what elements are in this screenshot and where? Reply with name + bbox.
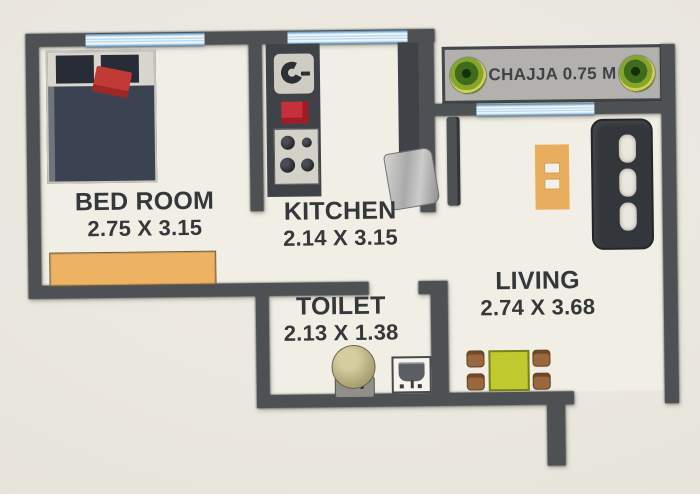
kitchen-label: KITCHEN 2.14 X 3.15 bbox=[262, 197, 418, 251]
kitchen-dimensions: 2.14 X 3.15 bbox=[263, 225, 418, 251]
dining-chair-icon bbox=[532, 350, 550, 367]
pillow-icon bbox=[56, 55, 94, 83]
bedroom-label: BED ROOM 2.75 X 3.15 bbox=[44, 187, 245, 241]
burner-icon bbox=[280, 158, 295, 173]
wall-left bbox=[25, 34, 41, 299]
bedroom-name: BED ROOM bbox=[44, 187, 244, 217]
living-dimensions: 2.74 X 3.68 bbox=[459, 294, 617, 320]
double-bed-icon bbox=[46, 49, 158, 183]
tv-unit-shelf bbox=[544, 178, 560, 189]
toilet-dimensions: 2.13 X 1.38 bbox=[271, 320, 411, 346]
wardrobe-icon bbox=[50, 252, 215, 286]
gas-stove-icon bbox=[281, 101, 308, 123]
sofa-cushion-icon bbox=[620, 202, 637, 230]
living-label: LIVING 2.74 X 3.68 bbox=[458, 267, 617, 321]
bedroom-window bbox=[85, 33, 204, 47]
living-name: LIVING bbox=[458, 267, 616, 296]
bedroom-dimensions: 2.75 X 3.15 bbox=[45, 215, 245, 242]
toilet-label: TOILET 2.13 X 1.38 bbox=[271, 292, 412, 345]
wall-toilet-left bbox=[256, 296, 270, 395]
kitchen-sink-icon bbox=[274, 53, 314, 93]
washbasin-foot bbox=[418, 384, 422, 388]
burner-icon bbox=[302, 137, 312, 147]
dining-table-icon bbox=[488, 350, 529, 391]
wall-bottom bbox=[257, 391, 574, 408]
tv-unit-icon bbox=[535, 144, 570, 209]
cooktop-burners-icon bbox=[274, 128, 320, 185]
sofa-cushion-icon bbox=[619, 168, 636, 196]
floor-plan-sheet: CHAJJA 0.75 M bbox=[0, 0, 700, 494]
wall-living-window-left bbox=[434, 103, 476, 116]
kitchen-counter-right bbox=[398, 42, 420, 154]
kitchen-name: KITCHEN bbox=[262, 197, 417, 226]
sofa-cushion-icon bbox=[619, 135, 636, 163]
wall-bedroom-kitchen bbox=[249, 44, 264, 211]
wall-entry-stub bbox=[547, 404, 566, 465]
dining-chair-icon bbox=[467, 373, 485, 390]
dining-chair-icon bbox=[466, 350, 484, 367]
living-window bbox=[476, 103, 594, 116]
wall-living-window-right bbox=[594, 101, 661, 114]
burner-icon bbox=[301, 158, 314, 171]
wall-toilet-living bbox=[431, 281, 450, 406]
tv-unit-shelf bbox=[544, 162, 560, 173]
toilet-name: TOILET bbox=[271, 292, 411, 321]
washbasin-icon bbox=[391, 356, 431, 393]
washbasin-pipe bbox=[411, 380, 414, 388]
wall-right bbox=[661, 44, 679, 403]
dining-chair-icon bbox=[533, 373, 551, 390]
washbasin-bowl bbox=[398, 362, 424, 381]
floor-plan: CHAJJA 0.75 M bbox=[0, 0, 700, 498]
washbasin-foot bbox=[400, 384, 404, 388]
red-cushion-icon bbox=[92, 66, 132, 99]
burner-icon bbox=[281, 136, 295, 150]
door-leaf-icon bbox=[447, 117, 461, 206]
